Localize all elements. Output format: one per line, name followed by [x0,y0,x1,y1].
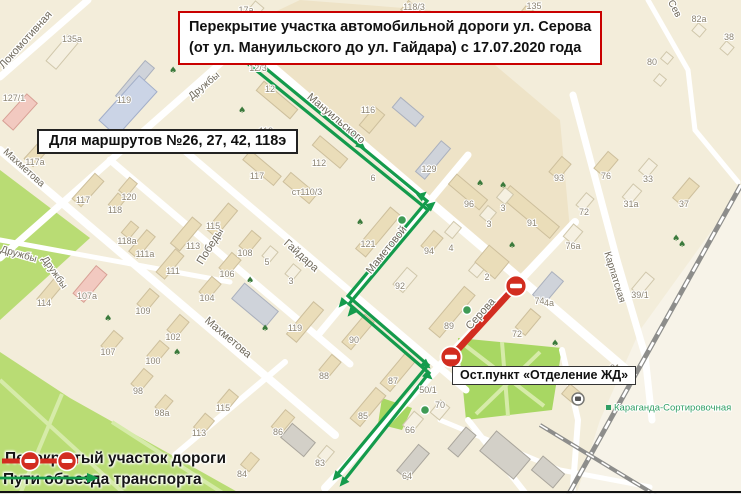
tree-icon: ♠ [551,339,559,349]
house-number-label: 3 [486,219,491,229]
detour-arrow-icon [0,471,100,485]
house-number-label: 135а [62,34,82,44]
house-number-label: 104 [199,293,214,303]
house-number-label: 5 [264,257,269,267]
closed-road-icon [2,450,80,472]
house-number-label: 115 [206,221,220,231]
house-number-label: 108 [237,248,252,258]
street-name-label: Гайдара [281,237,321,275]
tree-icon: ♠ [476,179,484,189]
tree-icon: ♠ [173,348,181,358]
house-number-label: 87 [388,376,398,386]
bus-stop-label: Ост.пункт «Отделение ЖД» [452,366,636,385]
railway-station-icon [572,393,584,405]
house-number-label: 112 [312,158,326,168]
house-number-label: 89 [444,321,454,331]
house-number-label: 111 [166,266,180,276]
house-number-label: 6 [370,173,375,183]
house-number-label: ст110/3 [292,187,322,197]
closure-banner-line1: Перекрытие участка автомобильной дороги … [189,17,591,38]
no-entry-icon [506,276,527,297]
house-number-label: 91 [527,218,537,228]
house-number-label: 4 [448,243,453,253]
house-number-label: 66 [405,425,415,435]
house-number-label: 114 [37,298,51,308]
house-number-label: 82а [691,14,706,24]
tree-icon: ♠ [104,314,112,324]
house-number-label: 119 [288,323,302,333]
map-canvas: ♠♠♠♠♠♠♠♠♠♠♠♠♠♠Караганда-СортировочнаяЛок… [0,0,741,499]
house-number-label: 83 [315,458,325,468]
house-number-label: 3 [500,203,505,213]
poi-icon [398,216,407,225]
house-number-label: 90 [349,335,359,345]
no-entry-icon [441,347,462,368]
house-number-label: 80 [647,57,657,67]
house-number-label: 107 [100,347,115,357]
house-number-label: 72 [579,207,589,217]
routes-note: Для маршрутов №26, 27, 42, 118э [37,129,298,154]
house-number-label: 118 [108,205,122,215]
street-name-label: Сев [665,0,683,19]
closure-banner-line2: (от ул. Мануильского до ул. Гайдара) с 1… [189,38,591,59]
building [720,41,734,55]
tree-icon: ♠ [238,106,246,116]
legend-detour-row: Пути объезда транспорта [0,471,202,489]
poi-icon [421,406,430,415]
building [692,23,706,37]
street-name-label: Махметова [202,315,254,361]
house-number-label: 33 [643,174,653,184]
house-number-label: 107а [77,291,97,301]
house-number-label: 98 [133,386,143,396]
house-number-label: 31а [623,199,638,209]
house-number-label: 72 [512,329,522,339]
house-number-label: 129 [421,164,436,174]
house-number-label: 39/1 [631,290,649,300]
house-number-label: 113 [186,241,200,251]
station-marker-icon [606,405,611,410]
tree-icon: ♠ [356,218,364,228]
building [661,52,674,65]
image-bottom-margin [0,493,741,499]
road [695,130,738,182]
house-number-label: 117 [250,171,264,181]
house-number-label: 37 [679,199,689,209]
house-number-label: 111а [136,249,155,259]
image-bottom-rule [0,491,741,493]
house-number-label: 88 [319,371,329,381]
house-number-label: 100 [145,356,160,366]
house-number-label: 12 [265,84,275,94]
house-number-label: 76 [601,171,611,181]
house-number-label: 70 [435,400,445,410]
house-number-label: 92 [395,281,405,291]
house-number-label: 121 [360,239,375,249]
tree-icon: ♠ [499,181,507,191]
legend-closed-row: Перекрытый участок дороги [2,450,226,468]
tree-icon: ♠ [508,241,516,251]
poi-icon [463,306,472,315]
city-map: ♠♠♠♠♠♠♠♠♠♠♠♠♠♠Караганда-СортировочнаяЛок… [0,0,741,499]
closure-banner: Перекрытие участка автомобильной дороги … [178,11,602,65]
building [448,427,476,457]
house-number-label: 96 [464,199,474,209]
house-number-label: 115 [216,403,230,413]
house-number-label: 109 [135,306,150,316]
house-number-label: 127/1 [3,93,26,103]
house-number-label: 3 [288,276,293,286]
house-number-label: 2 [484,272,489,282]
house-number-label: 98а [154,408,169,418]
house-number-label: 94 [424,246,434,256]
tree-icon: ♠ [261,324,269,334]
house-number-label: 76а [565,241,580,251]
house-number-label: 50/1 [419,385,437,395]
building [232,283,279,327]
house-number-label: 93 [554,173,564,183]
house-number-label: 113 [192,428,206,438]
house-number-label: 116 [361,105,375,115]
tree-icon: ♠ [246,276,254,286]
house-number-label: 102 [165,332,180,342]
house-number-label: 85 [358,411,368,421]
house-number-label: 86 [273,427,283,437]
house-number-label: 117а [25,157,44,167]
house-number-label: 106 [219,269,234,279]
house-number-label: 117 [76,195,90,205]
house-number-label: 84 [237,469,247,479]
house-number-label: 4а [544,298,554,308]
house-number-label: 119 [117,95,131,105]
station-name-label: Караганда-Сортировочная [614,403,731,414]
house-number-label: 38 [724,32,734,42]
house-number-label: 135 [526,1,541,11]
tree-icon: ♠ [678,240,686,250]
building [654,74,667,87]
house-number-label: 118а [117,236,136,246]
tree-icon: ♠ [169,66,177,76]
house-number-label: 120 [121,192,136,202]
house-number-label: 64 [402,471,412,481]
